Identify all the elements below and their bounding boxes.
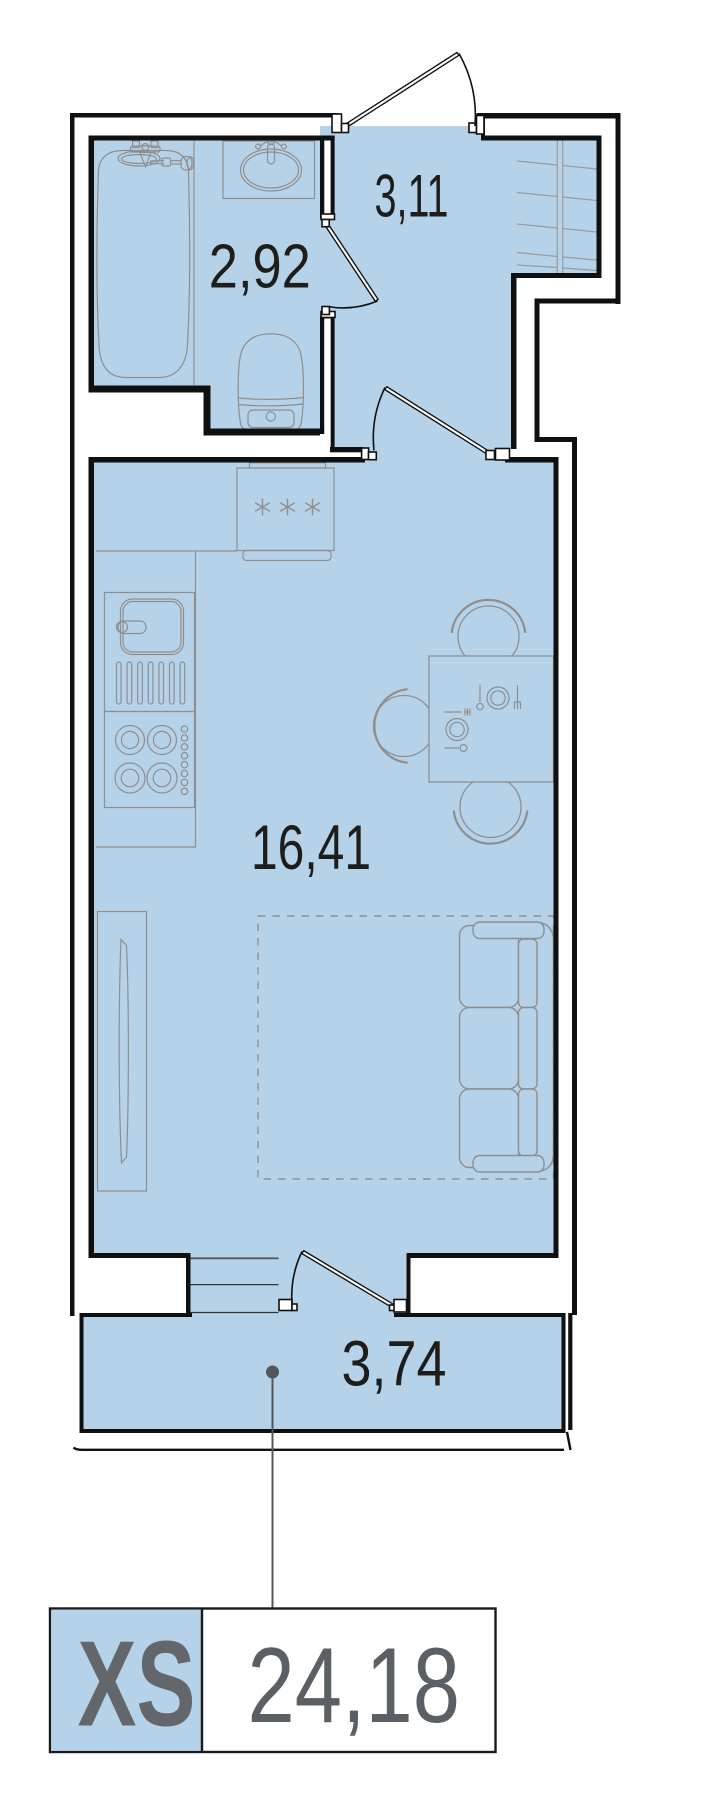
svg-text:XS: XS bbox=[78, 1616, 196, 1752]
svg-text:2,92: 2,92 bbox=[209, 233, 311, 302]
svg-text:24,18: 24,18 bbox=[248, 1626, 461, 1745]
svg-text:3,11: 3,11 bbox=[375, 162, 449, 230]
svg-text:3,74: 3,74 bbox=[342, 1328, 447, 1400]
svg-text:16,41: 16,41 bbox=[251, 813, 371, 883]
